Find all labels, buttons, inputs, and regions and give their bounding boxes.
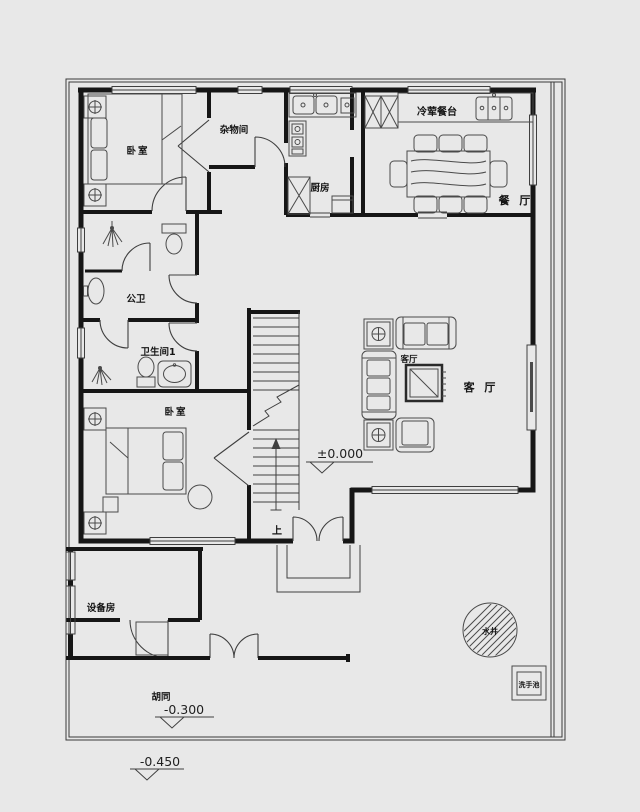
stairs-up-label: 上 [272,524,282,537]
bedroom1-hall-door [152,177,186,211]
bedroom1-folding-door [178,120,209,172]
stove [289,121,306,156]
elevation-road: -0.450 [130,754,184,780]
bath1-inner-door [100,320,128,348]
side-table [364,420,393,450]
stool [188,485,212,509]
public-bath-door [169,275,197,303]
bedroom2-folding-door [214,432,249,486]
dining-table-set [390,135,507,213]
nightstand [84,512,106,534]
porch [277,545,360,592]
elevation-ground: ±0.000 [306,446,373,473]
nightstand [84,184,106,206]
bedroom-top: 卧室 [84,94,182,206]
bath1-label: 卫生间1 [140,346,175,358]
storage-label: 杂物间 [220,124,249,136]
kitchen-label: 厨房 [310,182,329,194]
nightstand [84,96,106,118]
svg-text:-0.450: -0.450 [140,754,180,769]
floor-plan: 上 卧室 杂物间 厨房 冷荤餐台 [0,0,640,812]
toilet [137,357,155,387]
kitchen: 厨房 [288,93,356,214]
column-shaft [365,96,398,128]
equipment-room: 设备房 [66,549,203,658]
courtyard-double-door [210,634,258,658]
wash-basin: 洗手池 [512,666,546,700]
entry-double-door [293,517,343,541]
living-room: 客厅 客 厅 [362,317,498,452]
sofa-three-seat [362,351,396,419]
shower-door [122,243,150,271]
bedroom-bottom-label: 卧室 [164,406,187,418]
well-label: 水井 [481,626,498,636]
living-window [527,345,536,430]
bath1: 卫生间1 [92,346,191,387]
living-large-label: 客 厅 [463,380,499,394]
stair-break-line [253,385,299,426]
shower-icon [103,221,122,247]
floor-plan-page: 上 卧室 杂物间 厨房 冷荤餐台 [0,0,640,812]
equipment-label: 设备房 [87,602,116,614]
stair-up-arrow [271,438,282,510]
elevation-alley: -0.300 [155,702,214,728]
svg-text:±0.000: ±0.000 [317,446,363,461]
shower-icon [92,366,111,385]
svg-text:-0.300: -0.300 [164,702,204,717]
sofa-two-seat [396,317,456,349]
bed [88,94,182,184]
public-bath-label: 公卫 [126,294,146,305]
toilet [162,224,186,254]
living-small-label: 客厅 [399,354,418,365]
dining-sink [476,94,512,121]
bedroom-top-label: 卧室 [126,145,149,157]
vanity [158,361,191,387]
side-table [364,319,393,349]
pedestal-sink [84,278,105,304]
alley-annotations: 胡同 -0.300 -0.450 [130,691,214,780]
equipment-box [136,622,168,655]
fridge [332,196,353,213]
armchair [396,418,434,452]
staircase: 上 [253,312,299,537]
public-bath: 公卫 [84,221,187,305]
dining-label: 餐 厅 [498,193,534,207]
bedroom-bottom: 卧室 [84,406,212,534]
coffee-table [406,365,446,401]
cold-counter-label: 冷荤餐台 [417,105,457,118]
wash-basin-label: 洗手池 [519,680,540,689]
flue-shaft [288,177,310,214]
nightstand [84,408,106,430]
storage-door [255,137,285,167]
dining-room: 冷荤餐台 餐 厅 [365,93,533,213]
bed [106,428,186,494]
